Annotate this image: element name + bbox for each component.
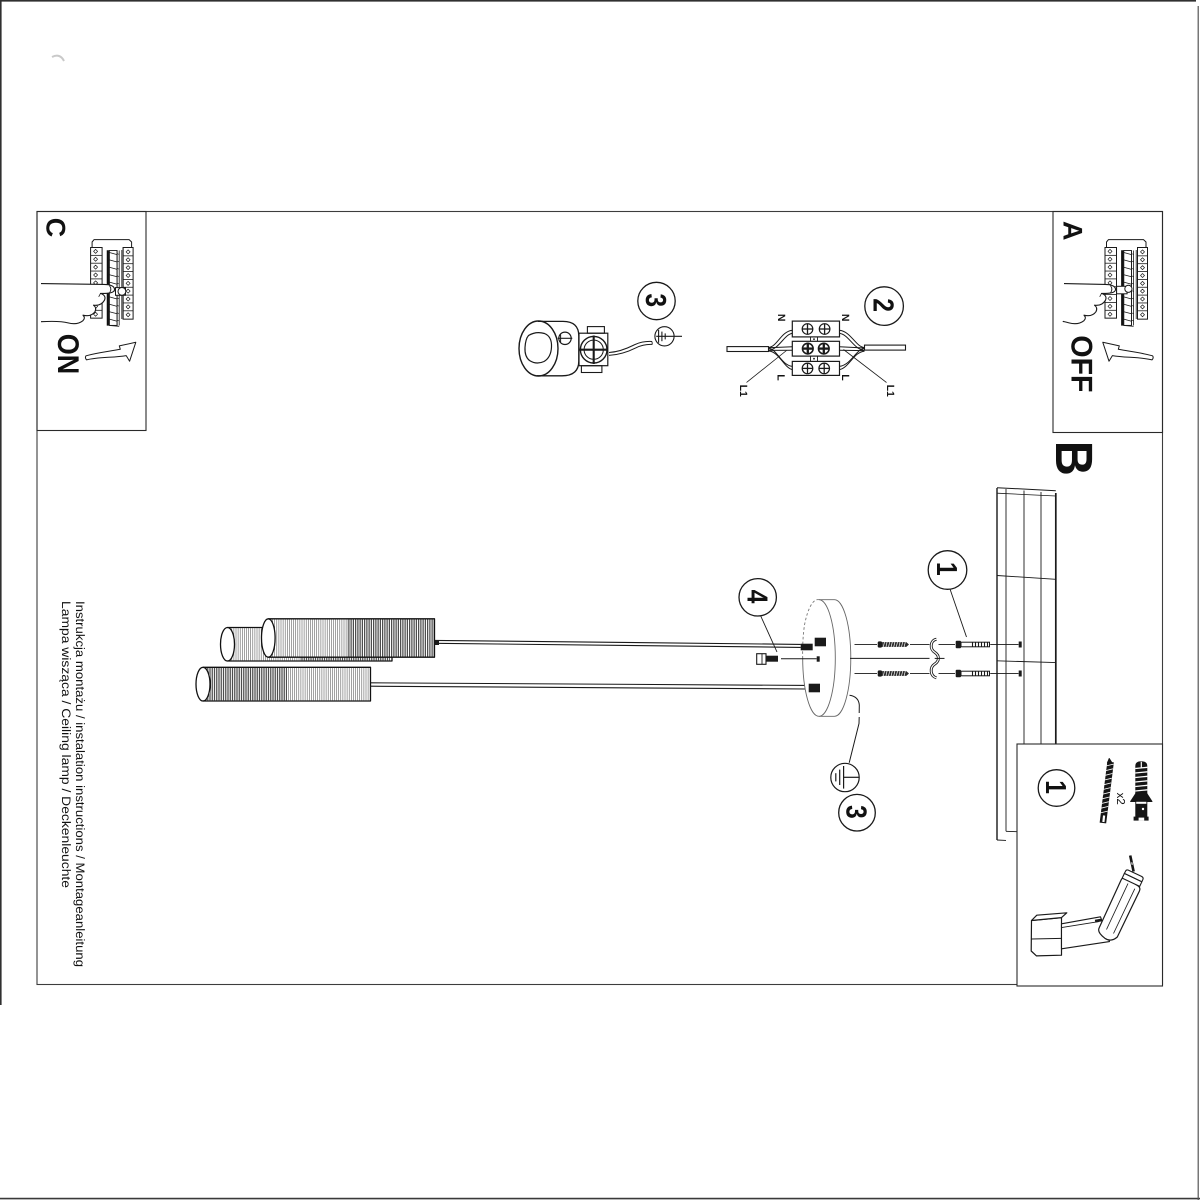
svg-text:Instrukcja montażu / instalati: Instrukcja montażu / instalation instruc… — [73, 601, 87, 967]
svg-text:B: B — [1044, 441, 1103, 476]
svg-text:1: 1 — [1039, 780, 1071, 794]
svg-text:N: N — [839, 314, 851, 322]
svg-text:A: A — [1058, 221, 1088, 241]
svg-text:L1: L1 — [884, 385, 896, 397]
svg-text:2: 2 — [867, 298, 899, 312]
svg-text:L1: L1 — [737, 385, 749, 397]
svg-text:x2: x2 — [1114, 793, 1126, 805]
svg-text:4: 4 — [740, 590, 772, 604]
svg-text:L: L — [775, 374, 787, 381]
svg-text:3: 3 — [840, 805, 872, 819]
svg-text:Lampa wisząca / Ceiling lamp /: Lampa wisząca / Ceiling lamp / Deckenleu… — [59, 601, 73, 888]
svg-text:3: 3 — [639, 293, 671, 307]
svg-text:1: 1 — [930, 562, 962, 576]
svg-text:OFF: OFF — [1065, 335, 1098, 392]
svg-text:L: L — [839, 374, 851, 381]
svg-text:C: C — [41, 218, 71, 238]
svg-text:N: N — [775, 314, 787, 322]
svg-text:ON: ON — [51, 334, 84, 375]
